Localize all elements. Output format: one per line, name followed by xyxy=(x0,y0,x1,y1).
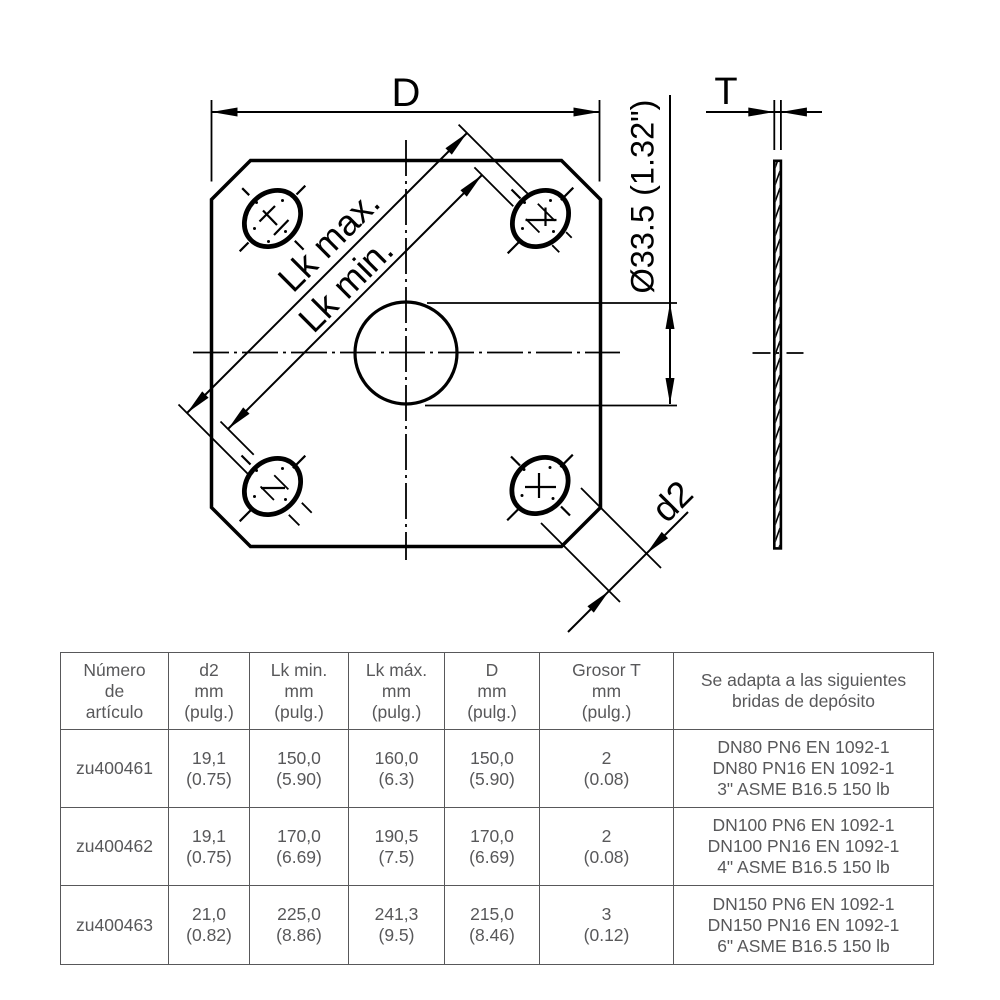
svg-text:Ø33.5 (1.32"): Ø33.5 (1.32") xyxy=(625,99,661,293)
svg-text:d2: d2 xyxy=(644,473,701,530)
svg-text:T: T xyxy=(714,71,737,113)
svg-text:D: D xyxy=(392,71,421,115)
